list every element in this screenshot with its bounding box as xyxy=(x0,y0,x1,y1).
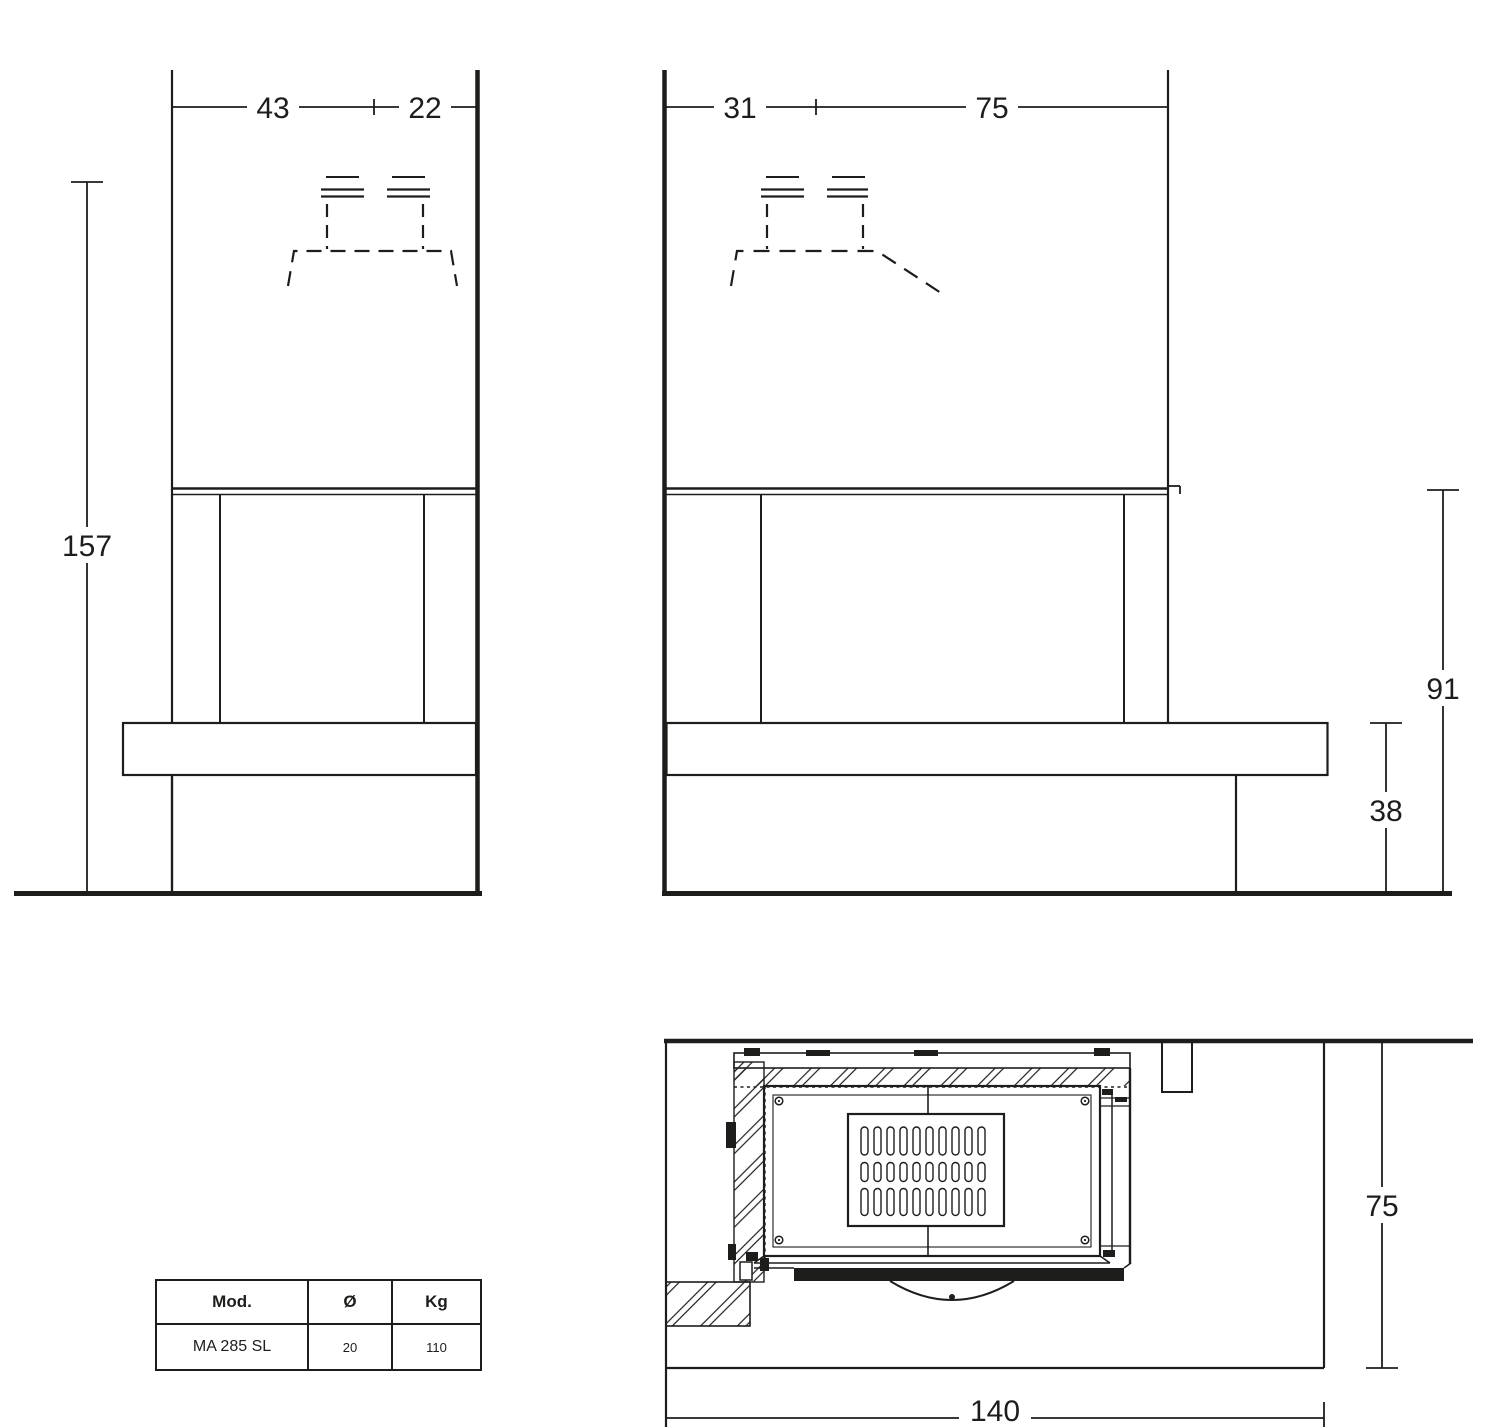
side-hood-bottom-edge xyxy=(664,486,1180,495)
spec-value-diameter: 20 xyxy=(308,1324,392,1370)
side-mantel-shelf xyxy=(667,723,1328,775)
front-hood-bottom-edge xyxy=(172,489,477,495)
spec-table-header-row: Mod. Ø Kg xyxy=(156,1280,481,1324)
dim-side-front-depth: 75 xyxy=(975,92,1008,125)
dim-opening-height: 91 xyxy=(1426,673,1459,706)
plan-convection-grille xyxy=(848,1114,1004,1226)
plan-back-insulation-strip xyxy=(734,1068,1130,1086)
front-flue-dashed-outline xyxy=(288,177,457,286)
spec-header-weight: Kg xyxy=(392,1280,481,1324)
dim-plan-depth: 75 xyxy=(1365,1190,1398,1223)
plan-view xyxy=(664,1041,1473,1427)
dim-plan-width: 140 xyxy=(970,1395,1020,1427)
spec-header-model: Mod. xyxy=(156,1280,308,1324)
plan-wall-notch xyxy=(1162,1043,1192,1092)
front-mantel-shelf xyxy=(123,723,476,775)
dim-side-back-depth: 31 xyxy=(723,92,756,125)
side-elevation-view xyxy=(662,70,1452,894)
dim-total-height: 157 xyxy=(62,530,112,563)
plan-left-insulated-wall xyxy=(734,1062,764,1282)
spec-header-diameter: Ø xyxy=(308,1280,392,1324)
side-flue-dashed-outline xyxy=(731,177,941,293)
plan-right-wall-assembly xyxy=(1100,1068,1130,1264)
dim-front-width-left: 43 xyxy=(256,92,289,125)
spec-table-data-row: MA 285 SL 20 110 xyxy=(156,1324,481,1370)
dim-front-width-right: 22 xyxy=(408,92,441,125)
spec-value-model: MA 285 SL xyxy=(156,1324,308,1370)
plan-left-bench xyxy=(666,1282,750,1326)
plan-door-pivot-dot xyxy=(949,1294,955,1300)
technical-drawing-canvas: 43 22 31 75 157 91 38 75 140 xyxy=(0,0,1500,1427)
front-elevation-view xyxy=(14,70,482,894)
spec-value-weight: 110 xyxy=(392,1324,481,1370)
dim-bench-height: 38 xyxy=(1369,795,1402,828)
fireplace-technical-drawing: 43 22 31 75 157 91 38 75 140 xyxy=(0,0,1500,1427)
spec-table: Mod. Ø Kg MA 285 SL 20 110 xyxy=(155,1279,482,1371)
